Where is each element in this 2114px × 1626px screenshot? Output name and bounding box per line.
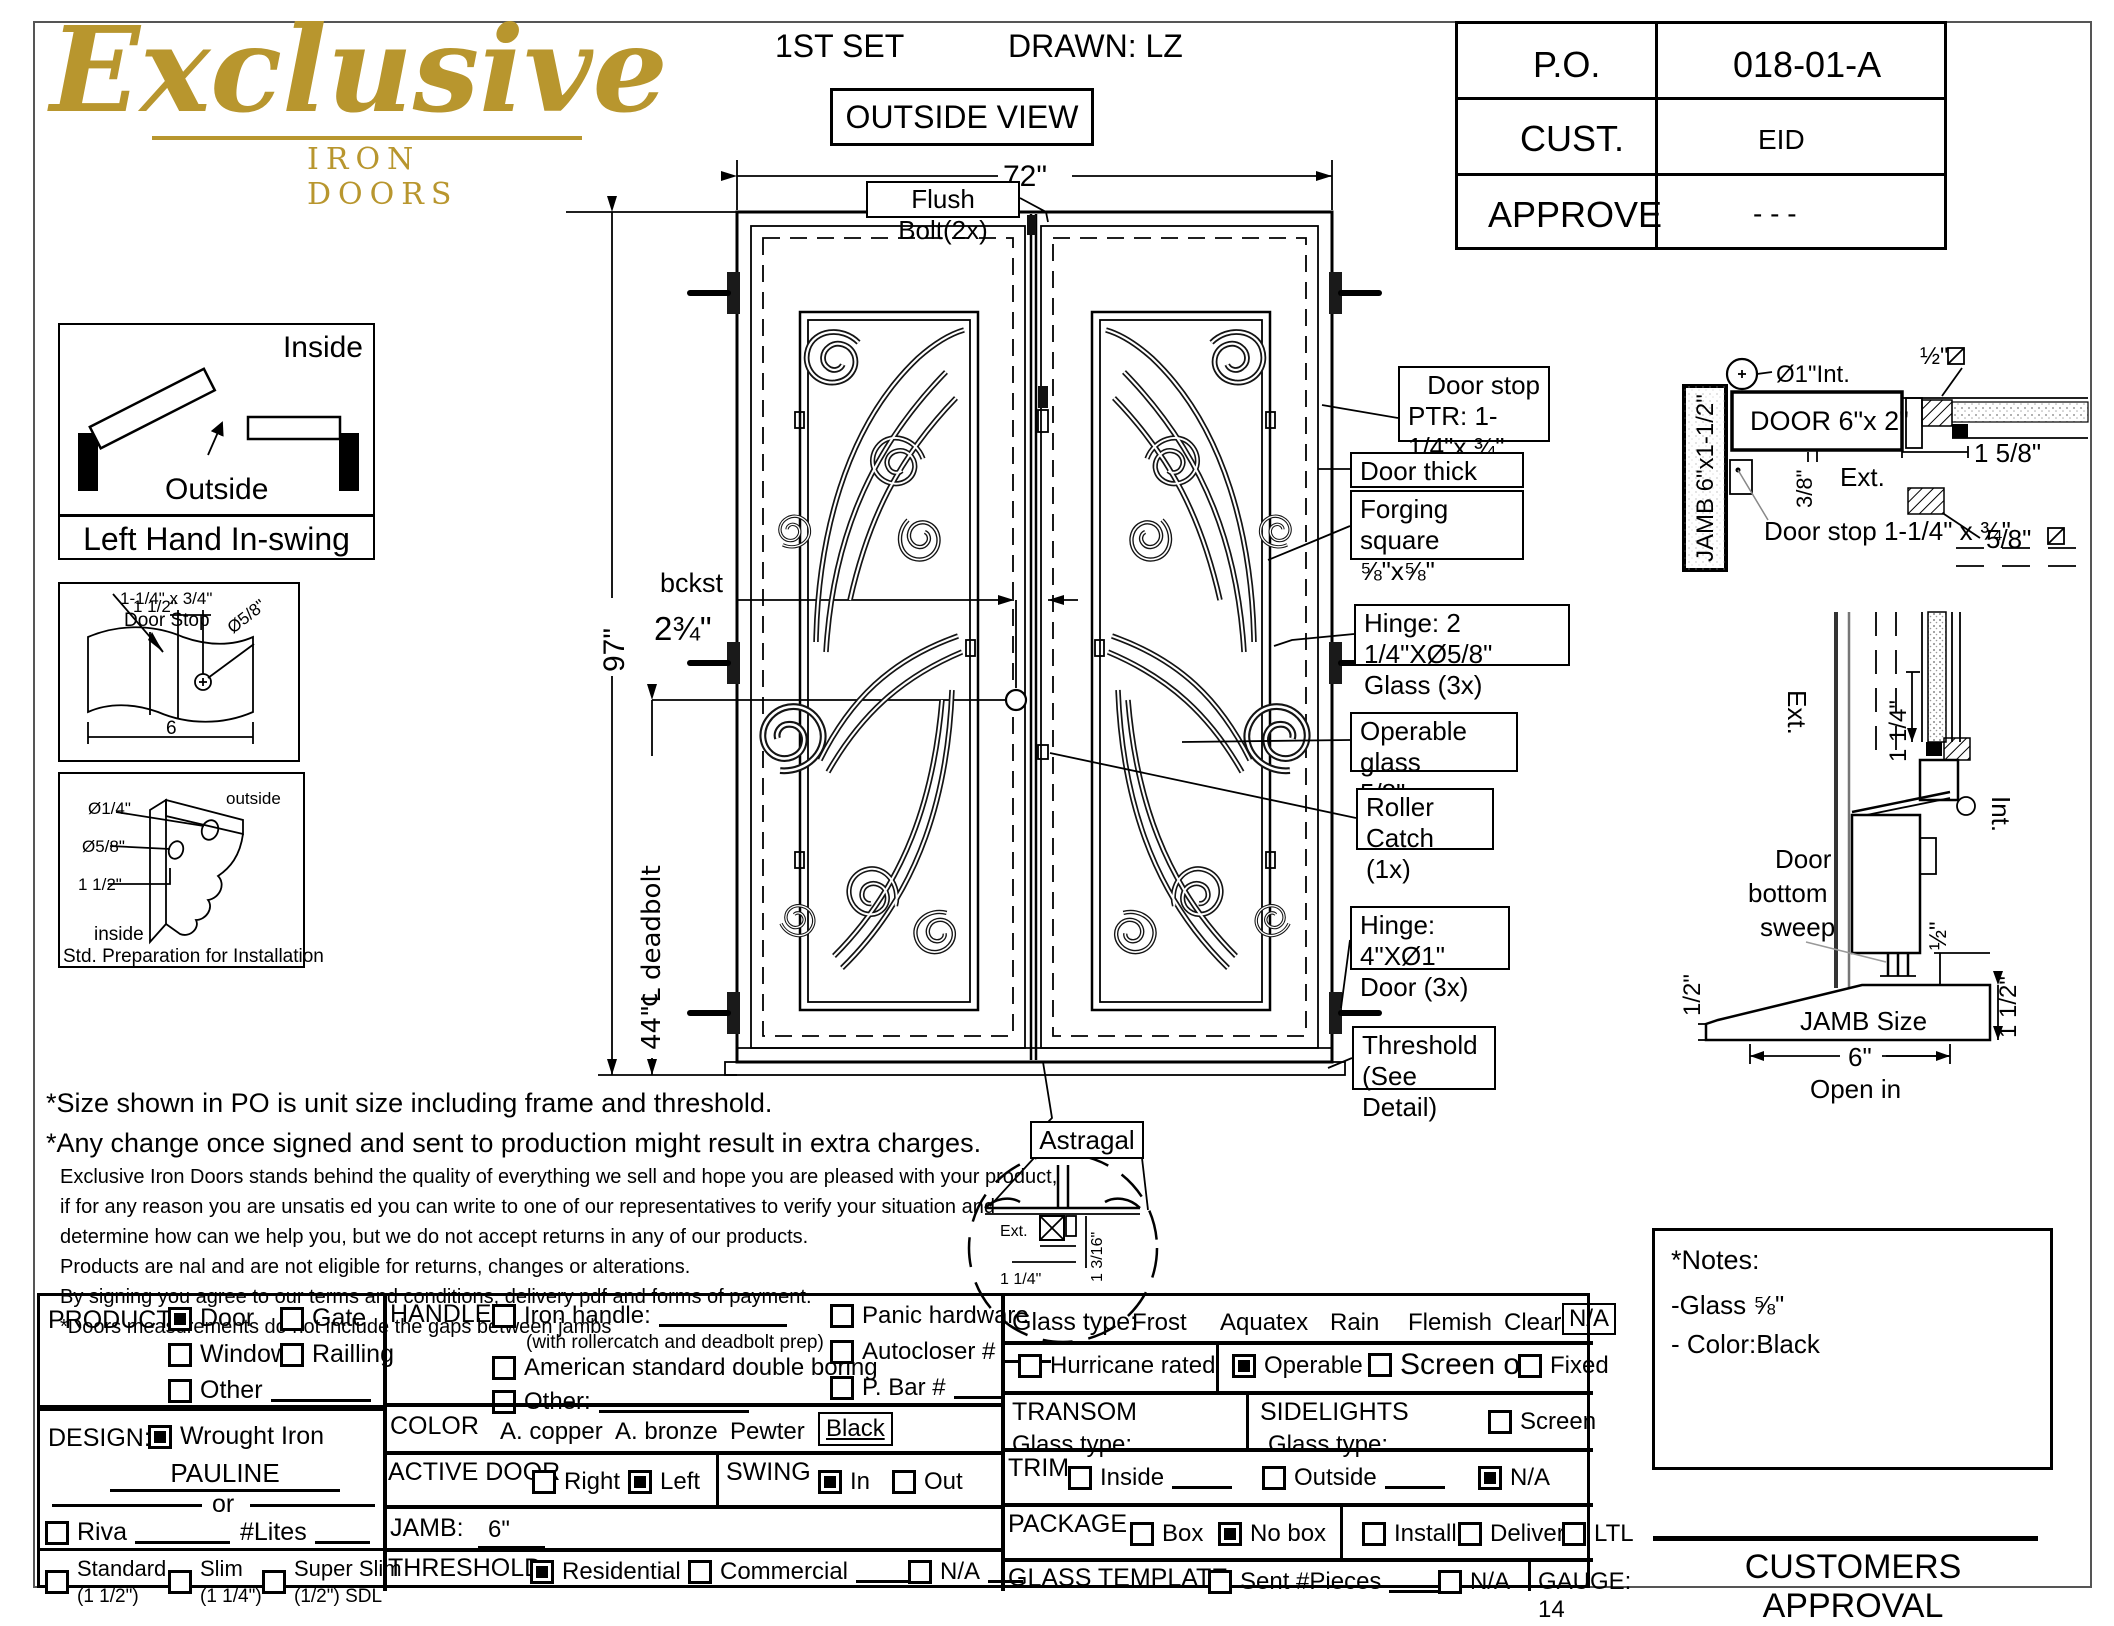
checkbox-threshold-na[interactable]	[908, 1560, 932, 1584]
swing-in-label: In	[850, 1468, 870, 1496]
fixed-label: Fixed	[1550, 1352, 1609, 1380]
glass-clear-option[interactable]: Clear	[1504, 1309, 1561, 1337]
callout-roller-catch: Roller Catch (1x)	[1356, 788, 1494, 850]
handle-other-label: Other:	[524, 1388, 591, 1416]
checkbox-package-box[interactable]	[1130, 1522, 1154, 1546]
hurricane-label: Hurricane rated	[1050, 1352, 1215, 1380]
cust-label: CUST.	[1520, 118, 1624, 160]
po-label: P.O.	[1533, 44, 1600, 86]
door-stop-detail-box	[58, 582, 300, 762]
package-label: PACKAGE	[1008, 1510, 1127, 1539]
glass-template-label: GLASS TEMPLATE	[1008, 1564, 1228, 1593]
callout-forging: Forging square ⅝"x⅝"	[1350, 490, 1524, 560]
po-value: 018-01-A	[1733, 44, 1881, 86]
checkbox-template-sent[interactable]	[1208, 1570, 1232, 1594]
checkbox-active-right[interactable]	[532, 1470, 556, 1494]
handle-pbar-label: P. Bar #	[862, 1374, 946, 1402]
logo-underline	[152, 136, 582, 140]
operable-label: Operable	[1264, 1352, 1363, 1380]
checkbox-hurricane[interactable]	[1018, 1354, 1042, 1378]
trim-outside-label: Outside	[1294, 1464, 1377, 1492]
cust-value: EID	[1758, 124, 1805, 156]
checkbox-screen[interactable]	[1368, 1353, 1392, 1377]
design-or-label: or	[212, 1490, 234, 1519]
logo-script-text: Exclusive	[50, 0, 668, 139]
prep-detail-box	[58, 772, 305, 968]
glass-frost-option[interactable]: Frost	[1132, 1309, 1187, 1337]
checkbox-trim-inside[interactable]	[1068, 1466, 1092, 1490]
active-left-label: Left	[660, 1468, 700, 1496]
checkbox-fixed[interactable]	[1518, 1354, 1542, 1378]
checkbox-trim-outside[interactable]	[1262, 1466, 1286, 1490]
design-label: DESIGN:	[48, 1424, 151, 1453]
swing-inside-label: Inside	[283, 331, 363, 365]
product-other-label: Other	[200, 1376, 263, 1405]
template-sent-label: Sent #Pieces	[1240, 1568, 1381, 1596]
package-install-label: Install	[1394, 1520, 1457, 1548]
sidelights-label: SIDELIGHTS	[1260, 1398, 1409, 1427]
callout-hinge-glass: Hinge: 2 1/4"XØ5/8" Glass (3x)	[1354, 604, 1570, 666]
disclaimer-line2: *Any change once signed and sent to prod…	[46, 1128, 981, 1159]
trim-inside-label: Inside	[1100, 1464, 1164, 1492]
handle-other-blank[interactable]	[599, 1391, 749, 1413]
set-label: 1ST SET	[775, 28, 904, 65]
notes-title: *Notes:	[1671, 1245, 2034, 1276]
outside-view-box: OUTSIDE VIEW	[830, 88, 1094, 146]
trim-inside-blank[interactable]	[1172, 1467, 1232, 1489]
checkbox-handle-panic[interactable]	[830, 1304, 854, 1328]
checkbox-product-door[interactable]	[168, 1307, 192, 1331]
design-slim-label: Slim(1 1/4")	[200, 1556, 262, 1608]
handle-iron-label: Iron handle:	[524, 1302, 651, 1330]
product-door-label: Door	[200, 1304, 254, 1333]
design-standard-label: Standard(1 1/2")	[77, 1556, 166, 1608]
trim-label: TRIM	[1008, 1454, 1069, 1483]
notes-glass: -Glass ⅝"	[1671, 1290, 2034, 1321]
approval-signature-line[interactable]	[1653, 1536, 2038, 1541]
callout-threshold: Threshold (See Detail)	[1352, 1026, 1496, 1090]
sidelights-glass-label: Glass type:	[1268, 1431, 1388, 1458]
checkbox-swing-in[interactable]	[818, 1470, 842, 1494]
checkbox-design-superslim[interactable]	[262, 1570, 286, 1594]
product-gate-label: Gate	[312, 1304, 366, 1333]
glass-type-label: Glass type:	[1012, 1308, 1137, 1337]
checkbox-package-nobox[interactable]	[1218, 1522, 1242, 1546]
product-window-label: Window	[200, 1340, 289, 1369]
checkbox-design-riva[interactable]	[45, 1521, 69, 1545]
handle-pbar-blank[interactable]	[954, 1377, 1002, 1399]
approve-label: APPROVE	[1488, 194, 1662, 236]
color-pewter-option[interactable]: Pewter	[730, 1418, 805, 1446]
drawn-label: DRAWN: LZ	[1008, 28, 1183, 65]
handle-iron-note: (with rollercatch and deadbolt prep)	[526, 1332, 824, 1354]
checkbox-swing-out[interactable]	[892, 1470, 916, 1494]
disclaimer-line1: *Size shown in PO is unit size including…	[46, 1088, 772, 1119]
jamb-value[interactable]: 6"	[478, 1516, 545, 1549]
handle-autocloser-label: Autocloser #	[862, 1338, 995, 1366]
gauge-value: GAUGE: 14	[1538, 1568, 1631, 1624]
product-other-blank[interactable]	[271, 1380, 371, 1402]
checkbox-package-delivery[interactable]	[1458, 1522, 1482, 1546]
package-nobox-label: No box	[1250, 1520, 1326, 1548]
order-form: PRODUCT: Door Gate Window Railling Other…	[37, 1293, 1590, 1588]
flush-bolt-label: Flush Bolt(2x)	[866, 181, 1020, 218]
callout-door-stop: Door stop PTR: 1-1/4"x ¾"	[1398, 366, 1550, 442]
checkbox-package-ltl[interactable]	[1562, 1522, 1586, 1546]
handle-iron-blank[interactable]	[659, 1305, 787, 1327]
threshold-na-label: N/A	[940, 1558, 980, 1586]
checkbox-trim-na[interactable]	[1478, 1466, 1502, 1490]
checkbox-operable[interactable]	[1232, 1354, 1256, 1378]
handle-panic-label: Panic hardware	[862, 1302, 1029, 1330]
checkbox-threshold-commercial[interactable]	[688, 1560, 712, 1584]
notes-color: - Color:Black	[1671, 1329, 2034, 1360]
sidelights-screen-label: Screen	[1520, 1408, 1596, 1436]
glass-flemish-option[interactable]: Flemish	[1408, 1309, 1492, 1337]
checkbox-product-railing[interactable]	[280, 1343, 304, 1367]
trim-outside-blank[interactable]	[1385, 1467, 1445, 1489]
checkbox-handle-iron[interactable]	[492, 1304, 516, 1328]
astragal-label: Astragal	[1030, 1121, 1144, 1159]
checkbox-threshold-residential[interactable]	[530, 1560, 554, 1584]
swing-out-label: Out	[924, 1468, 963, 1496]
checkbox-sidelights-screen[interactable]	[1488, 1410, 1512, 1434]
checkbox-package-install[interactable]	[1362, 1522, 1386, 1546]
callout-hinge-door: Hinge: 4"XØ1" Door (3x)	[1350, 906, 1510, 970]
transom-label: TRANSOM	[1012, 1398, 1137, 1427]
color-bronze-option[interactable]: A. bronze	[615, 1418, 718, 1446]
jamb-label: JAMB:	[390, 1514, 464, 1543]
design-name-value[interactable]: PAULINE	[110, 1458, 340, 1492]
design-lites-blank[interactable]	[315, 1522, 370, 1544]
product-railing-label: Railling	[312, 1340, 394, 1369]
glass-aquatex-option[interactable]: Aquatex	[1220, 1309, 1308, 1337]
swing-label: SWING	[726, 1458, 811, 1487]
package-ltl-label: LTL	[1594, 1520, 1634, 1548]
design-riva-blank[interactable]	[135, 1522, 230, 1544]
swing-diagram-box: Inside Outside Left Hand In-swing	[58, 323, 375, 560]
color-black-option[interactable]: Black	[818, 1412, 893, 1446]
checkbox-design-slim[interactable]	[168, 1570, 192, 1594]
checkbox-design-wrought-iron[interactable]	[148, 1425, 172, 1449]
checkbox-handle-american[interactable]	[492, 1356, 516, 1380]
approval-label: CUSTOMERS APPROVAL	[1653, 1548, 2053, 1626]
swing-caption: Left Hand In-swing	[60, 521, 373, 558]
checkbox-template-na[interactable]	[1438, 1570, 1462, 1594]
handle-american-label: American standard double boring	[524, 1354, 878, 1382]
checkbox-product-window[interactable]	[168, 1343, 192, 1367]
checkbox-active-left[interactable]	[628, 1470, 652, 1494]
threshold-commercial-label: Commercial	[720, 1558, 848, 1586]
notes-box: *Notes: -Glass ⅝" - Color:Black	[1652, 1228, 2053, 1470]
color-label: COLOR	[390, 1412, 479, 1441]
threshold-label: THRESHOLD	[388, 1554, 542, 1583]
checkbox-handle-other[interactable]	[492, 1390, 516, 1414]
package-box-label: Box	[1162, 1520, 1203, 1548]
design-wrought-label: Wrought Iron	[180, 1422, 324, 1451]
active-right-label: Right	[564, 1468, 620, 1496]
design-lites-label: #Lites	[240, 1518, 307, 1547]
checkbox-handle-autocloser[interactable]	[830, 1340, 854, 1364]
checkbox-product-gate[interactable]	[280, 1307, 304, 1331]
callout-operable-glass: Operable glass 5/8"	[1350, 712, 1518, 772]
handle-label: HANDLE	[390, 1300, 491, 1329]
design-riva-label: Riva	[77, 1518, 127, 1547]
design-superslim-label: Super Slim(1/2") SDL	[294, 1556, 402, 1608]
glass-rain-option[interactable]: Rain	[1330, 1309, 1379, 1337]
template-na-label: N/A	[1470, 1568, 1510, 1596]
glass-na-option[interactable]: N/A	[1562, 1303, 1616, 1335]
callout-door-thick: Door thick 2"x6"	[1350, 452, 1524, 488]
approve-value: - - -	[1753, 198, 1797, 230]
swing-outside-label: Outside	[165, 473, 268, 507]
spec-sheet: Exclusive IRON DOORS 1ST SET DRAWN: LZ O…	[0, 0, 2114, 1626]
logo-sub-text: IRON DOORS	[307, 142, 582, 212]
screen-or-label: Screen or	[1400, 1348, 1530, 1382]
threshold-residential-label: Residential	[562, 1558, 681, 1586]
trim-na-label: N/A	[1510, 1464, 1550, 1492]
title-block: P.O. 018-01-A CUST. EID APPROVE - - -	[1455, 21, 1947, 250]
color-copper-option[interactable]: A. copper	[500, 1418, 603, 1446]
checkbox-design-standard[interactable]	[45, 1570, 69, 1594]
product-label: PRODUCT:	[48, 1306, 176, 1335]
outside-view-label: OUTSIDE VIEW	[846, 99, 1079, 135]
checkbox-product-other[interactable]	[168, 1379, 192, 1403]
checkbox-handle-pbar[interactable]	[830, 1376, 854, 1400]
company-logo: Exclusive IRON DOORS	[42, 10, 582, 170]
